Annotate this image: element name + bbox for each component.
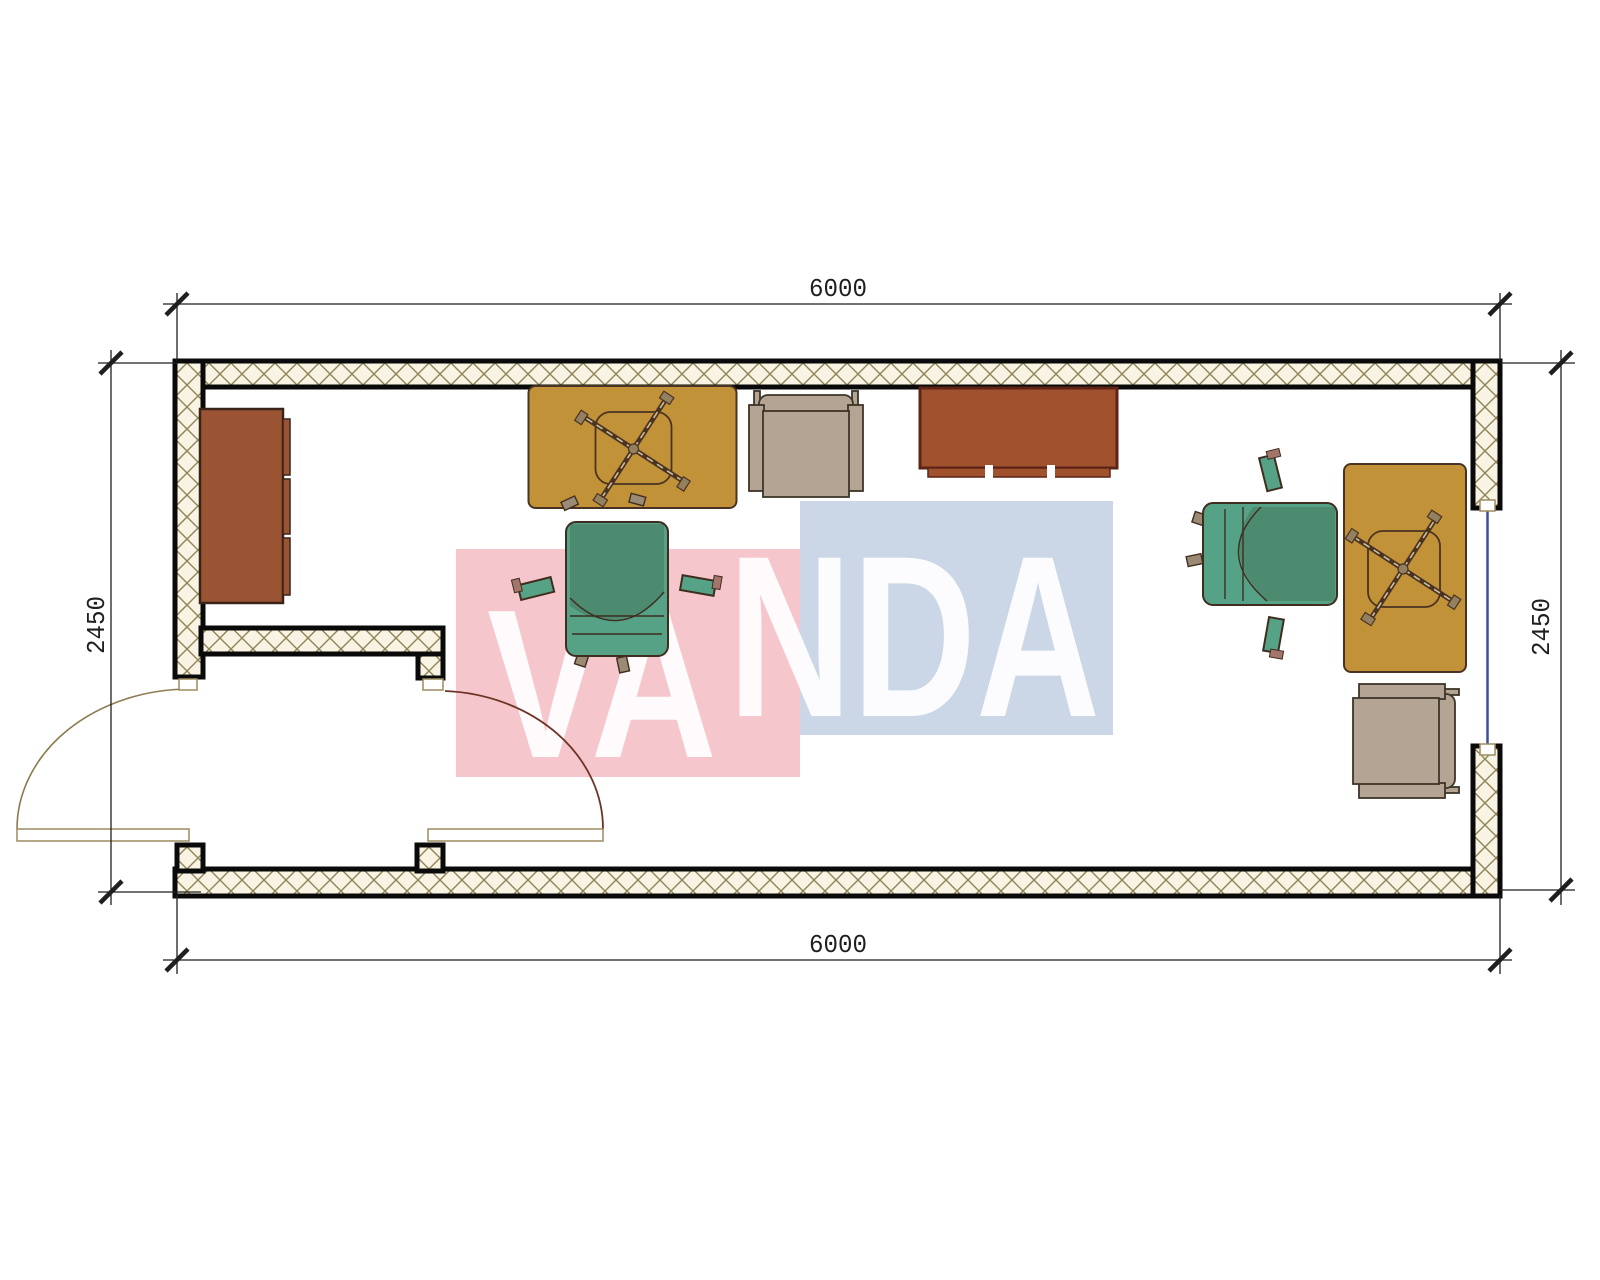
sideboard-handle-gap: [1047, 465, 1055, 479]
watermark: VA NDA: [456, 501, 1113, 802]
watermark-text-right: NDA: [728, 508, 1100, 765]
interior-door-jamb: [423, 679, 443, 690]
desk-right: [1313, 464, 1493, 672]
vestibule-bottom-stub: [417, 845, 443, 871]
sideboard-body: [920, 388, 1117, 468]
wall-right-lower: [1473, 746, 1500, 896]
drawer-cabinet-body: [200, 409, 283, 603]
dimension-left-label: 2450: [82, 596, 112, 654]
armchair-top: [749, 391, 863, 497]
exterior-door-swing-arc: [17, 689, 190, 829]
partition-stub: [418, 654, 443, 678]
sideboard: [920, 388, 1117, 479]
partition-wall: [201, 628, 443, 654]
armchair-bottom-right: [1353, 684, 1459, 798]
floor-plan-canvas: VA NDA: [0, 0, 1600, 1280]
window-jamb-top: [1480, 500, 1495, 511]
exterior-door-leaf: [17, 829, 189, 841]
exterior-door-jamb: [179, 679, 197, 690]
dimension-bottom: 6000: [163, 895, 1512, 974]
wall-bottom: [175, 869, 1500, 896]
drawer-cabinet: [200, 409, 290, 603]
sideboard-handle-gap: [985, 465, 993, 479]
wall-right-upper: [1473, 361, 1500, 508]
office-chair-right: [1186, 448, 1366, 659]
drawer-front: [283, 419, 290, 475]
drawer-front: [283, 538, 290, 595]
floor-plan-svg: VA NDA: [0, 0, 1600, 1280]
dimension-top-label: 6000: [809, 274, 867, 304]
wall-left-lower-stub: [177, 845, 203, 871]
sideboard-front-strip: [928, 468, 1110, 477]
dimension-top: 6000: [163, 274, 1512, 361]
desk-left: [529, 359, 737, 539]
wall-top: [175, 361, 1500, 387]
dimension-bottom-label: 6000: [809, 930, 867, 960]
dimension-right-label: 2450: [1527, 598, 1557, 656]
window-jamb-bottom: [1480, 744, 1495, 755]
interior-door-leaf: [428, 829, 603, 841]
drawer-front: [283, 479, 290, 534]
dimension-right: 2450: [1500, 350, 1575, 905]
